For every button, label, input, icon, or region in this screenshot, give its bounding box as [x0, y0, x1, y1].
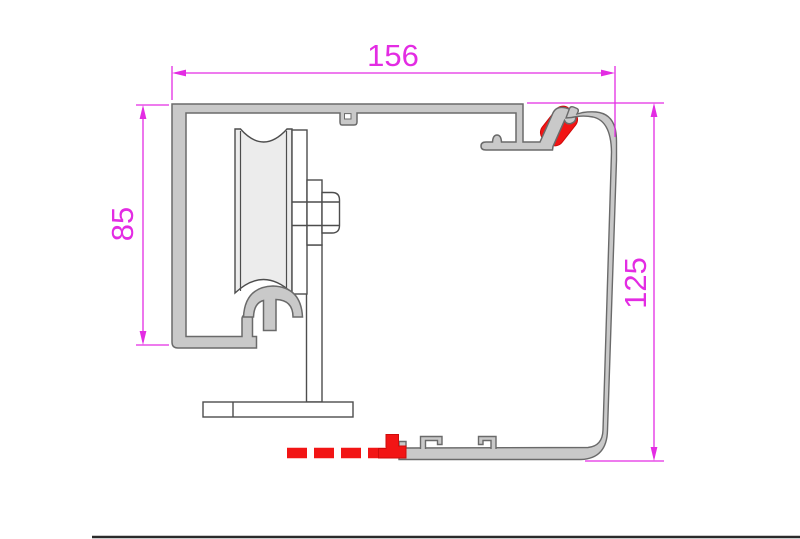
dimension-width-value: 156 [367, 38, 419, 73]
arrowhead-left [172, 70, 186, 77]
cover-profile [399, 107, 617, 460]
bottom-seal [287, 435, 406, 459]
cover-clip-left [421, 437, 443, 450]
profile-cross-section-drawing: 156 85 125 [0, 0, 800, 539]
dimension-profile-height: 125 [527, 103, 664, 461]
roller-wheel [235, 129, 292, 293]
arrowhead-bottom [140, 331, 147, 345]
arrowhead-right [601, 70, 615, 77]
hub-flange-plate [292, 130, 307, 294]
support-post [307, 245, 323, 402]
c-track-profile [172, 104, 576, 348]
cover-profile-outline [399, 107, 617, 460]
hex-bolt-head [322, 193, 340, 234]
track-profile-outline [172, 104, 576, 348]
arrowhead-top [140, 105, 147, 119]
wheel-body [235, 129, 292, 293]
dimension-track-height: 85 [105, 105, 169, 345]
bottom-seal-hook [379, 435, 407, 459]
track-hook-notch [345, 114, 352, 119]
dimension-profile-height-value: 125 [618, 257, 653, 309]
base-plate [203, 402, 353, 417]
washer-block [307, 180, 322, 245]
dimension-track-height-value: 85 [105, 207, 140, 241]
technical-drawing-canvas: 156 85 125 [0, 0, 800, 539]
arrowhead-top [651, 103, 658, 117]
arrowhead-bottom [651, 447, 658, 461]
